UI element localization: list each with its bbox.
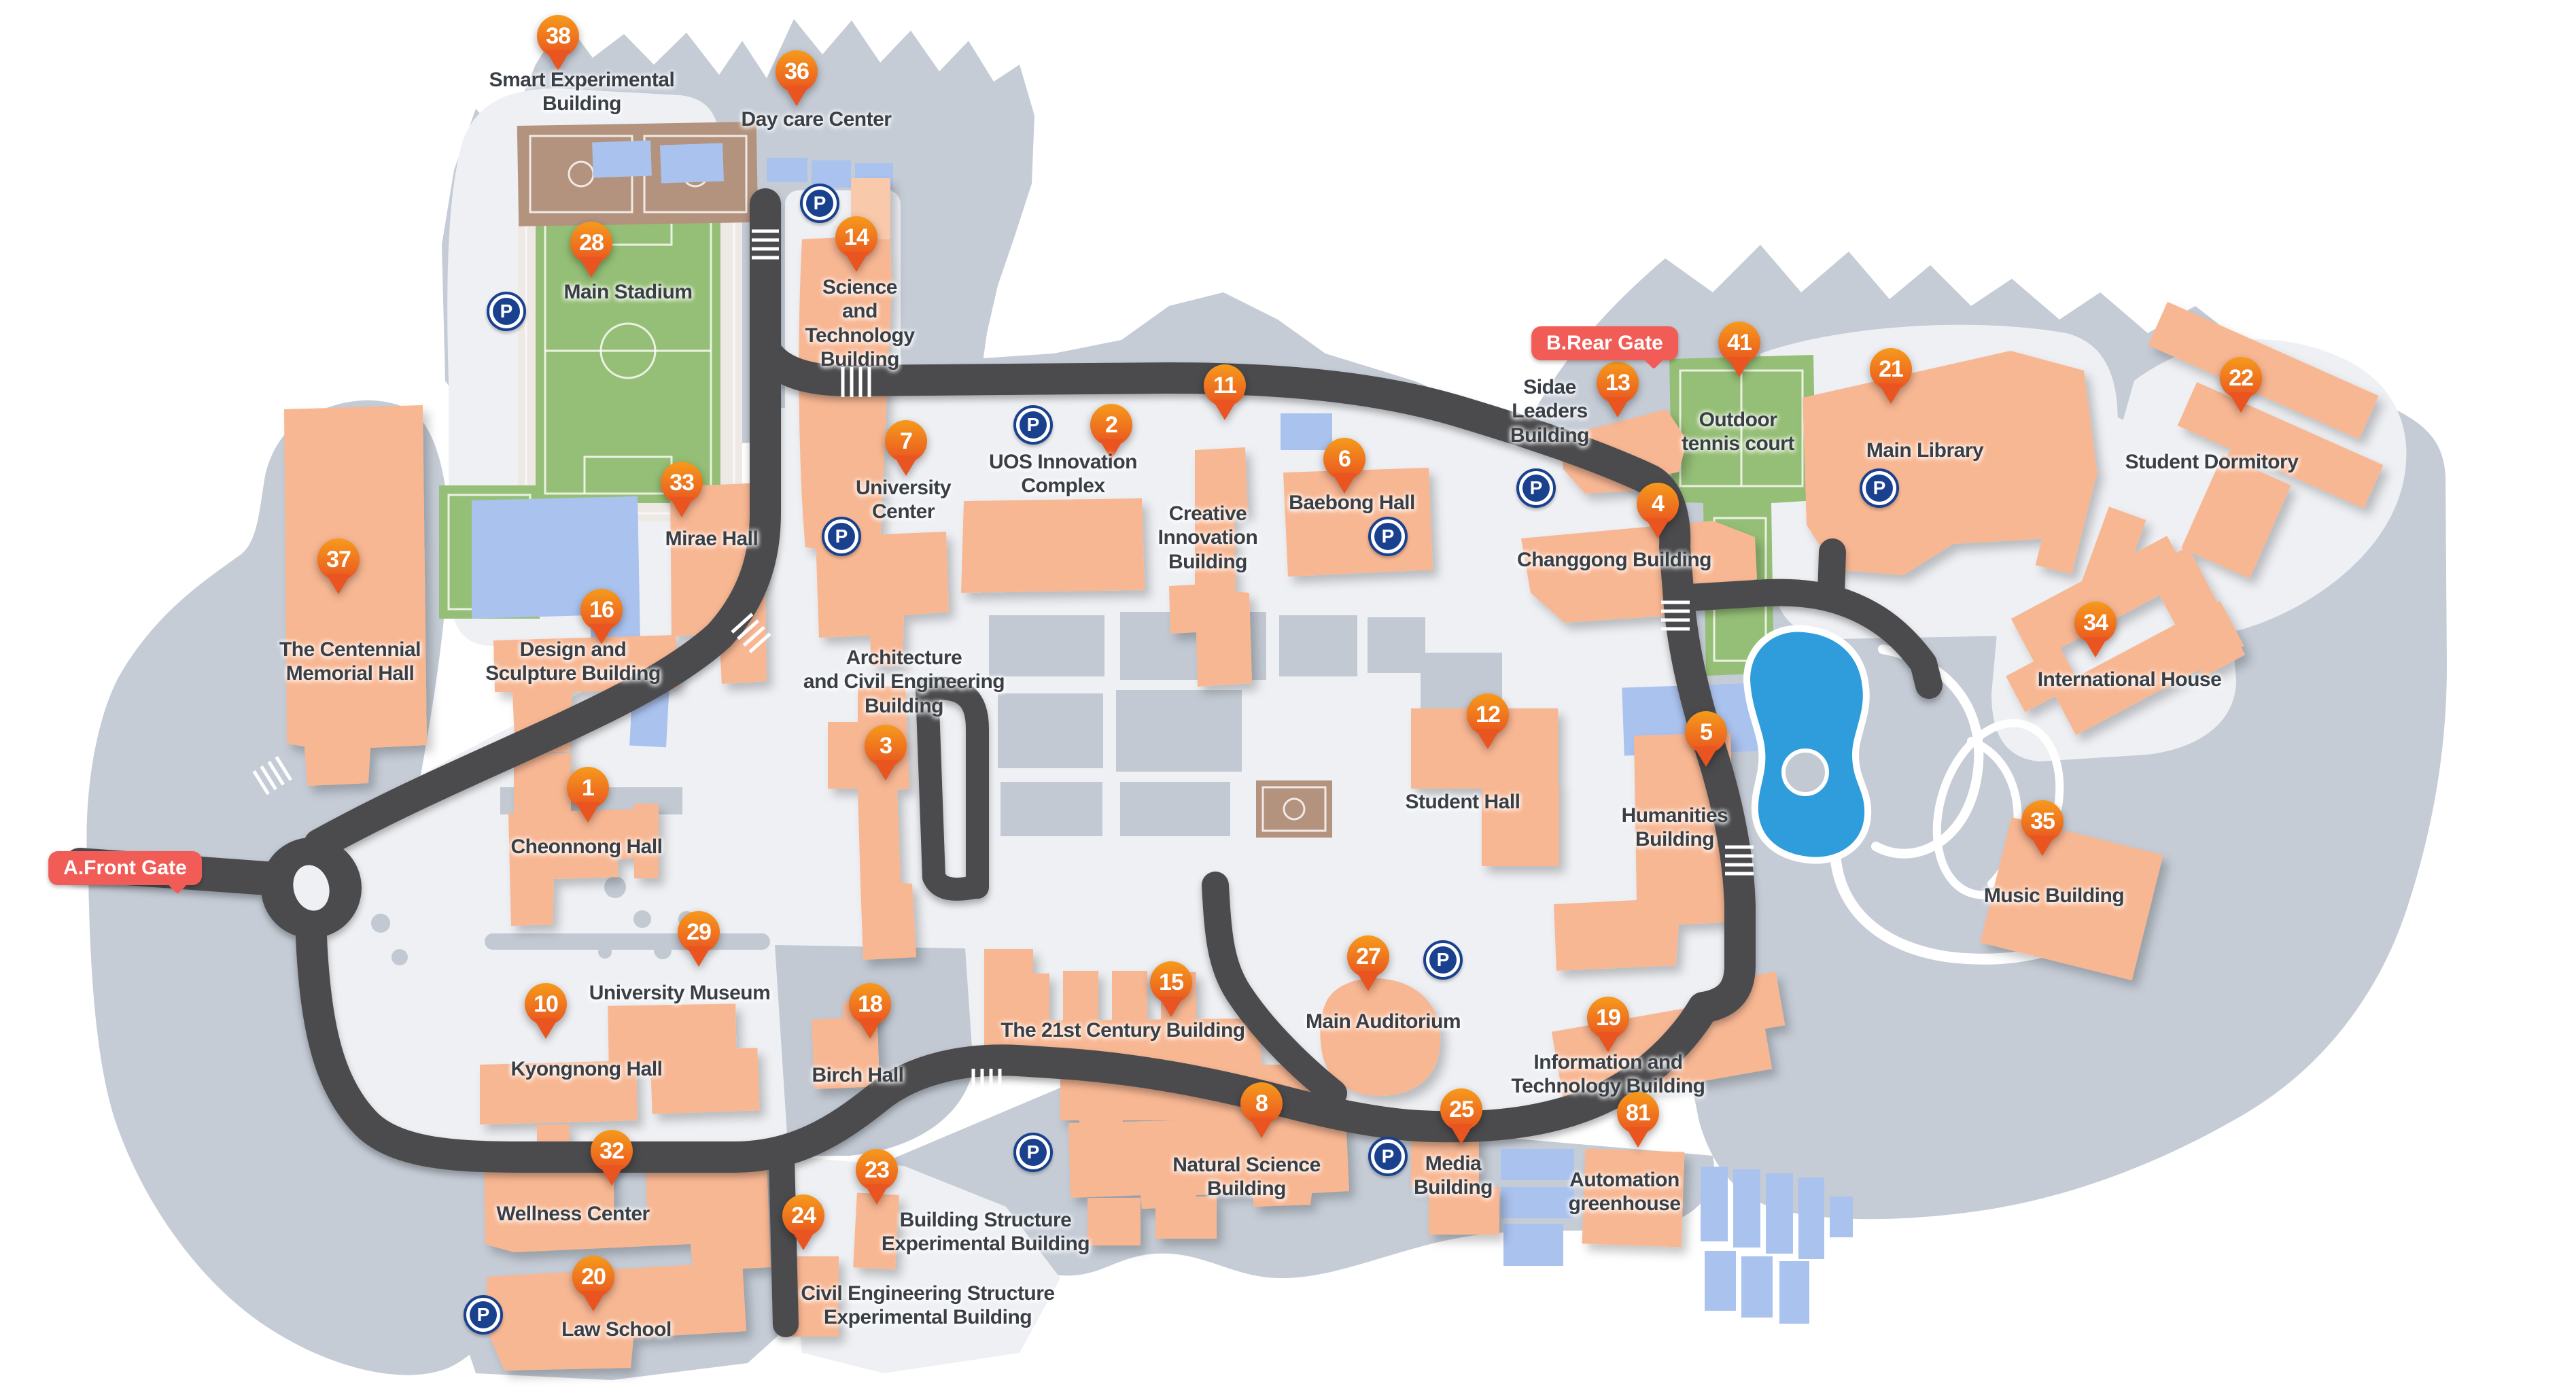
marker-label-15: The 21st Century Building [1000, 1018, 1245, 1042]
marker-number: 32 [591, 1130, 633, 1172]
marker-pin-14[interactable]: 14 [835, 216, 877, 276]
marker-label-6: Baebong Hall [1289, 491, 1415, 515]
marker-pin-28[interactable]: 28 [570, 222, 612, 281]
marker-pin-27[interactable]: 27 [1347, 935, 1389, 995]
marker-number: 3 [865, 725, 907, 767]
marker-number: 24 [782, 1194, 824, 1237]
marker-number: 2 [1090, 404, 1132, 446]
marker-number: 33 [661, 462, 703, 504]
marker-label-7: University Center [856, 476, 951, 524]
marker-pin-41[interactable]: 41 [1718, 322, 1760, 381]
marker-pin-19[interactable]: 19 [1587, 997, 1629, 1056]
marker-pin-29[interactable]: 29 [678, 911, 720, 971]
marker-number: 36 [776, 50, 818, 92]
marker-label-3: Architecture and Civil Engineering Build… [803, 646, 1005, 718]
parking-icon: P [822, 517, 861, 556]
marker-pin-1[interactable]: 1 [567, 767, 609, 827]
marker-number: 41 [1718, 322, 1760, 364]
marker-label-20: Law School [561, 1318, 672, 1341]
marker-number: 10 [525, 983, 567, 1025]
marker-pin-22[interactable]: 22 [2220, 357, 2262, 417]
campus-map: 38Smart Experimental Building36Day care … [0, 0, 2576, 1393]
marker-label-8: Natural Science Building [1172, 1153, 1321, 1201]
marker-number: 8 [1240, 1082, 1283, 1124]
marker-label-1: Cheonnong Hall [511, 835, 663, 859]
marker-number: 23 [856, 1149, 898, 1191]
parking-icon: P [800, 184, 839, 223]
gate-label-a: A.Front Gate [48, 851, 202, 885]
marker-pin-21[interactable]: 21 [1870, 348, 1912, 408]
marker-pin-33[interactable]: 33 [661, 462, 703, 521]
marker-pin-6[interactable]: 6 [1323, 438, 1365, 498]
marker-label-25: Media Building [1414, 1152, 1493, 1200]
marker-pin-13[interactable]: 13 [1597, 362, 1639, 422]
marker-number: 28 [570, 222, 612, 264]
marker-number: 34 [2074, 602, 2117, 644]
marker-number: 22 [2220, 357, 2262, 399]
marker-pin-20[interactable]: 20 [572, 1256, 614, 1315]
marker-label-34: International House [2038, 668, 2222, 691]
marker-number: 29 [678, 911, 720, 953]
marker-label-10: Kyongnong Hall [511, 1057, 663, 1081]
marker-label-2: UOS Innovation Complex [989, 450, 1137, 498]
marker-label-36: Day care Center [742, 107, 892, 131]
gate-label-b: B.Rear Gate [1531, 326, 1678, 360]
parking-icon: P [1368, 1137, 1408, 1176]
marker-label-28: Main Stadium [563, 280, 692, 304]
marker-pin-8[interactable]: 8 [1240, 1082, 1283, 1142]
marker-number: 37 [317, 538, 360, 581]
marker-number: 21 [1870, 348, 1912, 390]
marker-label-27: Main Auditorium [1306, 1010, 1461, 1033]
marker-pin-7[interactable]: 7 [885, 420, 927, 480]
parking-icon: P [1013, 405, 1053, 445]
marker-number: 14 [835, 216, 877, 258]
marker-number: 19 [1587, 997, 1629, 1039]
marker-number: 7 [885, 420, 927, 462]
marker-label-81: Automation greenhouse [1568, 1168, 1680, 1216]
marker-pin-11[interactable]: 11 [1204, 364, 1246, 424]
parking-icon: P [1423, 940, 1463, 980]
marker-number: 20 [572, 1256, 614, 1298]
marker-pin-36[interactable]: 36 [776, 50, 818, 110]
marker-label-21: Main Library [1866, 438, 1983, 462]
marker-label-37: The Centennial Memorial Hall [279, 638, 421, 686]
marker-label-12: Student Hall [1405, 790, 1520, 814]
marker-number: 13 [1597, 362, 1639, 404]
marker-number: 4 [1637, 483, 1679, 525]
marker-pin-3[interactable]: 3 [865, 725, 907, 785]
marker-number: 1 [567, 767, 609, 809]
marker-label-22: Student Dormitory [2125, 450, 2299, 474]
marker-number: 15 [1150, 961, 1192, 1003]
parking-icon: P [1368, 517, 1408, 556]
marker-number: 5 [1685, 711, 1727, 753]
marker-number: 25 [1440, 1088, 1482, 1131]
marker-label-38: Smart Experimental Building [489, 68, 675, 116]
marker-pin-37[interactable]: 37 [317, 538, 360, 598]
annotations-layer: 38Smart Experimental Building36Day care … [0, 0, 2576, 1393]
marker-pin-4[interactable]: 4 [1637, 483, 1679, 543]
marker-pin-34[interactable]: 34 [2074, 602, 2117, 661]
marker-number: 18 [849, 983, 891, 1025]
marker-pin-81[interactable]: 81 [1617, 1092, 1659, 1152]
marker-label-23: Building Structure Experimental Building [882, 1208, 1090, 1256]
marker-pin-12[interactable]: 12 [1467, 693, 1509, 753]
parking-icon: P [1860, 468, 1899, 508]
marker-number: 11 [1204, 364, 1246, 407]
marker-label-16: Design and Sculpture Building [485, 638, 661, 686]
marker-number: 35 [2021, 800, 2064, 842]
marker-label-33: Mirae Hall [665, 527, 759, 551]
marker-pin-10[interactable]: 10 [525, 983, 567, 1043]
parking-icon: P [1516, 468, 1556, 508]
marker-label-29: University Museum [589, 981, 771, 1005]
marker-label-18: Birch Hall [812, 1063, 903, 1087]
marker-number: 16 [580, 589, 623, 631]
marker-pin-15[interactable]: 15 [1150, 961, 1192, 1021]
marker-number: 12 [1467, 693, 1509, 736]
marker-label-14: Science and Technology Building [805, 275, 914, 372]
marker-label-13: Sidae Leaders Building [1510, 375, 1589, 447]
marker-pin-32[interactable]: 32 [591, 1130, 633, 1190]
marker-number: 81 [1617, 1092, 1659, 1134]
marker-pin-5[interactable]: 5 [1685, 711, 1727, 771]
marker-pin-18[interactable]: 18 [849, 983, 891, 1043]
marker-label-35: Music Building [1984, 884, 2124, 908]
marker-number: 6 [1323, 438, 1365, 480]
parking-icon: P [487, 292, 526, 331]
marker-pin-25[interactable]: 25 [1440, 1088, 1482, 1148]
marker-number: 38 [537, 15, 579, 57]
marker-pin-24[interactable]: 24 [782, 1194, 824, 1254]
parking-icon: P [464, 1295, 503, 1335]
marker-number: 27 [1347, 935, 1389, 978]
marker-pin-38[interactable]: 38 [537, 15, 579, 75]
parking-icon: P [1013, 1133, 1053, 1172]
marker-pin-23[interactable]: 23 [856, 1149, 898, 1209]
marker-pin-35[interactable]: 35 [2021, 800, 2064, 860]
marker-label-32: Wellness Center [496, 1202, 649, 1226]
marker-label-19: Information and Technology Building [1512, 1050, 1705, 1099]
marker-label-41: Outdoor tennis court [1682, 408, 1794, 456]
marker-label-24: Civil Engineering Structure Experimental… [801, 1282, 1054, 1330]
marker-label-11: Creative Innovation Building [1158, 502, 1258, 574]
marker-label-5: Humanities Building [1622, 804, 1728, 852]
marker-label-4: Changgong Building [1517, 548, 1711, 572]
